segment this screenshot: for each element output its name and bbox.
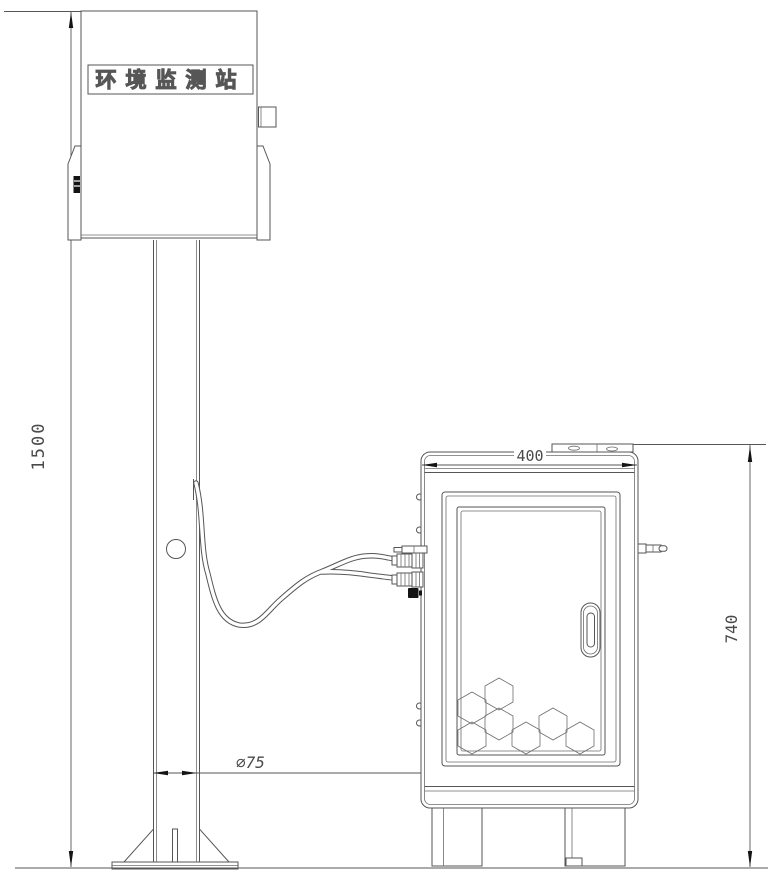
- gland-ribbed-body: [397, 573, 412, 586]
- gland-nut: [412, 572, 423, 587]
- arrow-left-icon: [153, 771, 168, 775]
- pole-height-label: 1500: [29, 422, 49, 471]
- mounting-pole: [154, 240, 200, 862]
- technical-drawing-canvas: 1500 环境监测站: [0, 0, 769, 882]
- bracket-grille: [74, 176, 81, 193]
- equipment-cabinet: [417, 444, 668, 866]
- aux-connector-pin: [419, 591, 422, 596]
- technical-drawing: 1500 环境监测站: [0, 0, 769, 882]
- arrow-up-icon: [748, 446, 752, 462]
- probe-base: [638, 544, 646, 553]
- cable-gland-upper: [392, 553, 423, 568]
- cabinet-leg-right: [565, 808, 625, 866]
- center-rib: [173, 829, 178, 862]
- vent-rod-tip: [394, 548, 402, 553]
- gusset-left: [124, 829, 154, 862]
- signal-cable: [196, 483, 394, 625]
- leg-foot-tab: [566, 858, 582, 866]
- arrow-down-icon: [748, 851, 752, 867]
- dimension-pole-diameter: ∅75: [153, 753, 440, 775]
- gusset-right: [200, 829, 230, 862]
- gland-collar: [392, 556, 397, 565]
- head-unit-enclosure: [81, 11, 257, 238]
- dimension-cabinet-height: 740: [633, 445, 766, 868]
- cabinet-width-label: 400: [516, 447, 543, 465]
- aux-connector: [408, 588, 419, 598]
- side-probe: [638, 544, 667, 553]
- cable-core: [196, 483, 323, 625]
- top-mounting-plate: [552, 444, 633, 452]
- pole-base: [112, 829, 238, 869]
- gland-collar: [392, 575, 397, 584]
- station-sign: 环境监测站: [88, 65, 253, 94]
- monitor-head-unit: 环境监测站: [68, 11, 276, 240]
- side-bracket-right: [257, 146, 270, 240]
- vent-rod-body: [402, 546, 427, 553]
- pole-diameter-label: ∅75: [236, 753, 265, 772]
- gland-ribbed-body: [397, 554, 412, 567]
- cable-gland-lower: [392, 572, 423, 587]
- dimension-pole-height: 1500: [4, 12, 81, 868]
- cabinet-leg-left: [432, 808, 482, 866]
- station-sign-label: 环境监测站: [96, 68, 246, 92]
- arrow-up-icon: [69, 12, 73, 28]
- probe-tip: [659, 546, 667, 552]
- cabinet-height-label: 740: [722, 615, 741, 644]
- gland-nut: [412, 553, 423, 568]
- arrow-down-icon: [69, 851, 73, 867]
- arrow-right-icon: [182, 771, 197, 775]
- pole-hole: [167, 540, 186, 559]
